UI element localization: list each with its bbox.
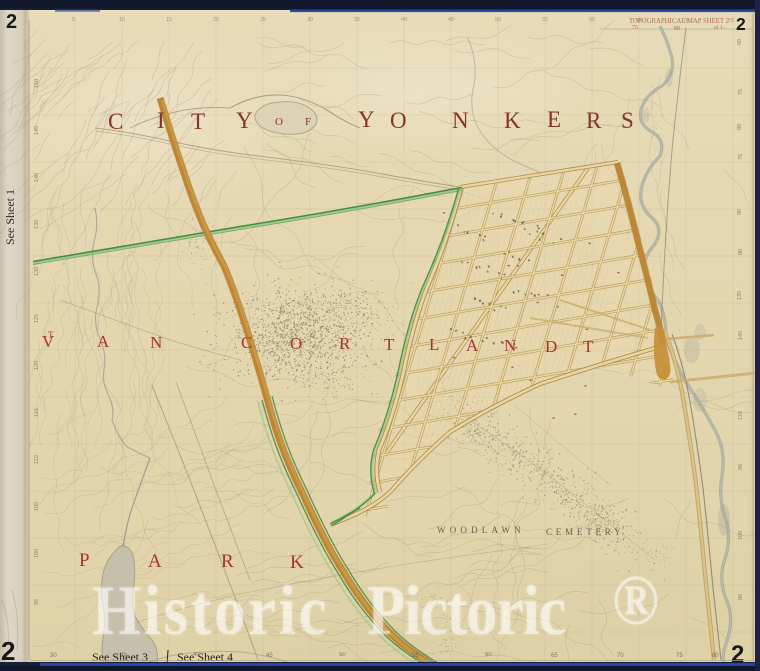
svg-text:N: N bbox=[504, 336, 516, 355]
svg-text:30: 30 bbox=[50, 653, 57, 659]
svg-text:75: 75 bbox=[676, 653, 683, 659]
svg-text:T: T bbox=[191, 109, 205, 134]
svg-text:P: P bbox=[79, 550, 90, 571]
svg-text:100: 100 bbox=[34, 549, 40, 558]
svg-text:75: 75 bbox=[738, 89, 744, 95]
svg-text:150: 150 bbox=[34, 79, 40, 88]
svg-text:135: 135 bbox=[34, 220, 40, 229]
svg-text:80: 80 bbox=[738, 249, 744, 255]
svg-text:20: 20 bbox=[213, 17, 219, 23]
svg-text:L: L bbox=[429, 335, 439, 354]
svg-text:N: N bbox=[150, 333, 162, 352]
svg-text:90: 90 bbox=[737, 209, 743, 215]
svg-text:95: 95 bbox=[738, 464, 744, 470]
svg-text:O: O bbox=[390, 108, 407, 133]
svg-text:T: T bbox=[384, 335, 395, 354]
svg-text:80: 80 bbox=[712, 653, 719, 659]
svg-text:CEMETERY: CEMETERY bbox=[546, 527, 624, 537]
svg-text:60: 60 bbox=[589, 17, 595, 23]
svg-text:TOPOGRAPHICAL MAP SHEET 2: TOPOGRAPHICAL MAP SHEET 2 bbox=[629, 17, 729, 25]
svg-text:75: 75 bbox=[728, 18, 734, 24]
svg-text:50: 50 bbox=[339, 652, 346, 658]
svg-text:Y: Y bbox=[358, 107, 375, 132]
svg-text:C: C bbox=[241, 333, 252, 352]
svg-text:145: 145 bbox=[738, 331, 744, 340]
svg-text:2: 2 bbox=[736, 14, 746, 34]
svg-text:R: R bbox=[586, 108, 602, 133]
svg-text:C: C bbox=[108, 109, 123, 134]
svg-text:35: 35 bbox=[354, 17, 360, 23]
svg-text:55: 55 bbox=[412, 653, 419, 659]
svg-text:65: 65 bbox=[551, 653, 558, 659]
svg-text:2: 2 bbox=[6, 11, 17, 33]
svg-text:35: 35 bbox=[120, 652, 127, 658]
svg-text:I: I bbox=[157, 108, 165, 133]
svg-text:15: 15 bbox=[166, 17, 172, 23]
svg-text:125: 125 bbox=[34, 314, 40, 323]
svg-text:25: 25 bbox=[260, 17, 266, 23]
svg-text:A: A bbox=[466, 336, 479, 355]
svg-text:115: 115 bbox=[34, 408, 40, 417]
svg-text:70: 70 bbox=[683, 18, 689, 24]
svg-text:60: 60 bbox=[737, 39, 743, 45]
svg-text:100: 100 bbox=[738, 531, 744, 540]
svg-text:R: R bbox=[339, 334, 351, 353]
svg-text:40: 40 bbox=[401, 17, 407, 23]
svg-text:110: 110 bbox=[34, 455, 40, 464]
svg-text:75: 75 bbox=[632, 25, 638, 31]
svg-text:at 1-: at 1- bbox=[714, 25, 725, 31]
svg-text:T: T bbox=[583, 337, 594, 356]
svg-text:75: 75 bbox=[738, 154, 744, 160]
svg-text:55: 55 bbox=[542, 17, 548, 23]
svg-text:E: E bbox=[547, 107, 561, 132]
svg-text:89: 89 bbox=[674, 26, 680, 32]
svg-text:110: 110 bbox=[738, 411, 744, 420]
svg-text:65: 65 bbox=[636, 18, 642, 24]
svg-text:140: 140 bbox=[34, 173, 40, 182]
svg-text:135: 135 bbox=[737, 291, 743, 300]
svg-text:See Sheet 1: See Sheet 1 bbox=[3, 189, 17, 245]
svg-text:O: O bbox=[275, 116, 283, 128]
svg-text:10: 10 bbox=[119, 17, 125, 23]
svg-text:120: 120 bbox=[34, 361, 40, 370]
svg-text:30: 30 bbox=[307, 17, 313, 23]
svg-text:A: A bbox=[97, 332, 110, 351]
svg-text:O: O bbox=[290, 334, 302, 353]
svg-text:50: 50 bbox=[495, 17, 501, 23]
svg-text:130: 130 bbox=[34, 267, 40, 276]
svg-text:Y: Y bbox=[236, 108, 253, 133]
svg-text:145: 145 bbox=[34, 126, 40, 135]
svg-text:S: S bbox=[621, 108, 634, 133]
svg-text:K: K bbox=[504, 108, 521, 133]
svg-text:45: 45 bbox=[448, 17, 454, 23]
svg-text:60: 60 bbox=[485, 652, 492, 658]
svg-text:D: D bbox=[545, 337, 557, 356]
svg-text:A: A bbox=[148, 551, 162, 572]
svg-text:80: 80 bbox=[737, 124, 743, 130]
svg-text:70: 70 bbox=[617, 653, 624, 659]
svg-text:45: 45 bbox=[266, 653, 273, 659]
svg-text:WOODLAWN: WOODLAWN bbox=[437, 525, 525, 535]
svg-text:40: 40 bbox=[193, 652, 200, 658]
svg-text:105: 105 bbox=[34, 502, 40, 511]
svg-text:N: N bbox=[452, 108, 469, 133]
svg-text:F: F bbox=[305, 116, 311, 128]
svg-text:5: 5 bbox=[72, 17, 75, 23]
svg-text:T: T bbox=[48, 330, 54, 340]
svg-text:R: R bbox=[221, 551, 234, 572]
